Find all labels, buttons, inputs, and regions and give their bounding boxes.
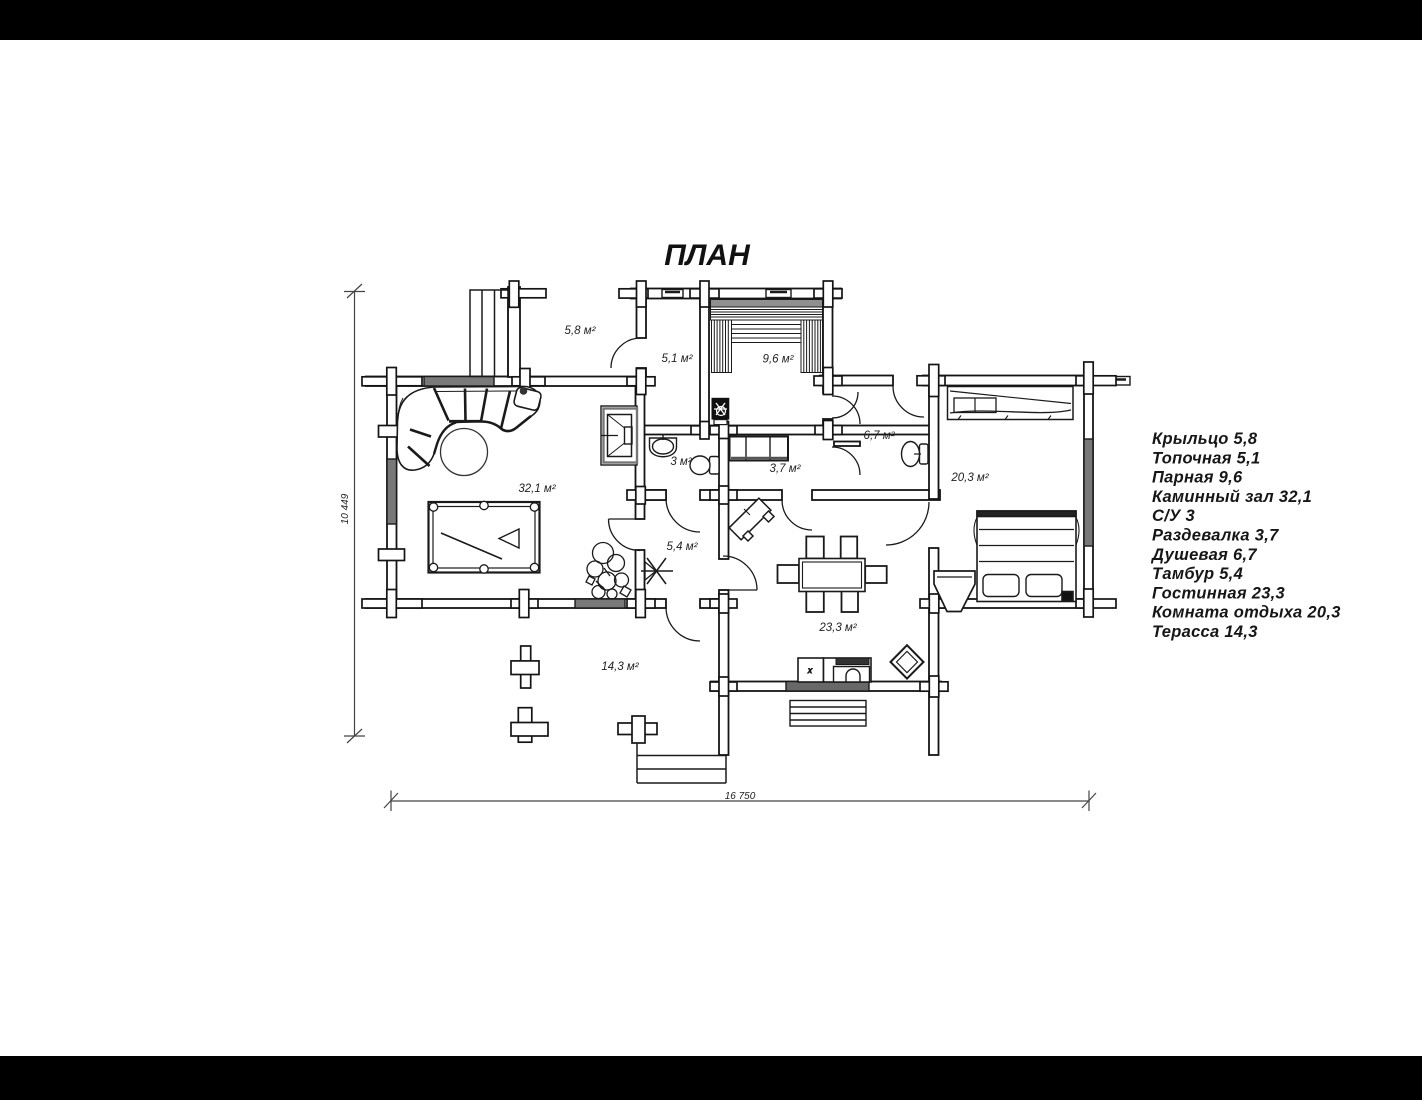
svg-text:5,8 м²: 5,8 м²: [565, 325, 597, 337]
svg-text:23,3 м²: 23,3 м²: [818, 622, 857, 634]
svg-text:Топочная 5,1: Топочная 5,1: [1152, 449, 1260, 467]
svg-text:16 750: 16 750: [725, 791, 756, 802]
svg-text:Тамбур 5,4: Тамбур 5,4: [1152, 565, 1243, 583]
svg-text:Парная 9,6: Парная 9,6: [1152, 469, 1243, 487]
svg-text:32,1 м²: 32,1 м²: [518, 483, 556, 495]
svg-text:ПЛАН: ПЛАН: [664, 239, 751, 272]
svg-text:9,6 м²: 9,6 м²: [763, 354, 795, 366]
svg-text:Гостинная 23,3: Гостинная 23,3: [1152, 584, 1285, 602]
svg-text:Комната отдыха 20,3: Комната отдыха 20,3: [1152, 604, 1341, 622]
svg-text:3 м²: 3 м²: [670, 456, 692, 468]
svg-text:5,4 м²: 5,4 м²: [667, 541, 699, 553]
svg-text:Душевая 6,7: Душевая 6,7: [1150, 546, 1257, 564]
svg-text:20,3 м²: 20,3 м²: [950, 472, 989, 484]
svg-text:3,7 м²: 3,7 м²: [770, 463, 802, 475]
svg-text:6,7 м²: 6,7 м²: [864, 430, 896, 442]
svg-text:Крыльцо 5,8: Крыльцо 5,8: [1152, 430, 1258, 448]
svg-text:Каминный зал 32,1: Каминный зал 32,1: [1152, 488, 1312, 506]
svg-text:Терасса 14,3: Терасса 14,3: [1152, 623, 1258, 641]
svg-text:10 449: 10 449: [340, 493, 351, 524]
svg-text:Раздевалка 3,7: Раздевалка 3,7: [1152, 527, 1279, 545]
svg-text:С/У 3: С/У 3: [1152, 507, 1195, 525]
svg-text:5,1 м²: 5,1 м²: [662, 353, 694, 365]
svg-text:14,3 м²: 14,3 м²: [601, 661, 639, 673]
